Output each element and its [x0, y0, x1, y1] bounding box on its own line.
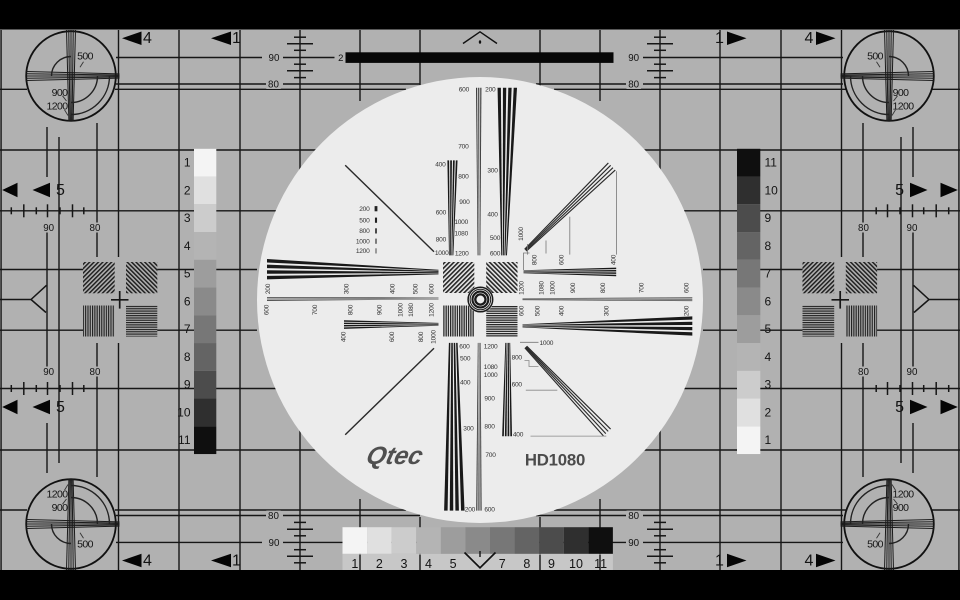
svg-text:3: 3: [400, 557, 407, 571]
svg-text:1200: 1200: [484, 344, 498, 351]
svg-text:400: 400: [487, 212, 498, 219]
svg-text:7: 7: [184, 322, 191, 336]
svg-text:9: 9: [765, 211, 772, 225]
svg-text:400: 400: [611, 254, 618, 265]
svg-text:11: 11: [594, 557, 607, 571]
svg-text:800: 800: [532, 254, 539, 265]
svg-text:2: 2: [376, 557, 383, 571]
svg-text:4: 4: [805, 552, 814, 569]
svg-text:800: 800: [512, 355, 523, 362]
svg-text:700: 700: [312, 304, 319, 315]
svg-text:1200: 1200: [519, 281, 526, 295]
svg-text:500: 500: [413, 283, 420, 294]
svg-text:4: 4: [143, 30, 152, 47]
svg-text:80: 80: [268, 79, 279, 90]
svg-text:1: 1: [184, 156, 191, 170]
svg-text:80: 80: [268, 511, 279, 522]
svg-text:8: 8: [523, 557, 530, 571]
svg-text:5: 5: [895, 182, 904, 199]
svg-text:80: 80: [858, 367, 869, 378]
svg-text:800: 800: [359, 228, 370, 235]
svg-text:3: 3: [765, 378, 772, 392]
svg-text:800: 800: [418, 331, 425, 342]
svg-text:80: 80: [90, 367, 101, 378]
svg-text:600: 600: [389, 331, 396, 342]
svg-text:600: 600: [459, 344, 470, 351]
svg-text:7: 7: [765, 267, 772, 281]
svg-text:1200: 1200: [356, 248, 370, 255]
svg-text:600: 600: [512, 382, 523, 389]
svg-text:600: 600: [459, 87, 470, 94]
svg-text:1080: 1080: [454, 230, 468, 237]
svg-text:700: 700: [458, 144, 469, 151]
svg-text:500: 500: [535, 305, 542, 316]
svg-text:500: 500: [867, 50, 883, 62]
svg-text:11: 11: [765, 156, 778, 170]
svg-text:400: 400: [435, 162, 446, 169]
svg-text:1000: 1000: [550, 281, 557, 295]
svg-text:90: 90: [628, 538, 639, 549]
svg-text:5: 5: [56, 399, 65, 416]
svg-text:10: 10: [765, 183, 779, 197]
svg-text:900: 900: [484, 396, 495, 403]
svg-text:800: 800: [600, 282, 607, 293]
svg-text:1000: 1000: [484, 372, 498, 379]
svg-text:600: 600: [684, 282, 691, 293]
svg-text:4: 4: [765, 350, 772, 364]
svg-text:1000: 1000: [356, 239, 370, 246]
svg-text:500: 500: [77, 50, 93, 62]
svg-text:300: 300: [604, 305, 611, 316]
svg-text:600: 600: [559, 254, 566, 265]
svg-text:800: 800: [484, 424, 495, 431]
svg-text:200: 200: [485, 87, 496, 94]
svg-text:5: 5: [450, 557, 457, 571]
svg-text:500: 500: [460, 356, 471, 363]
svg-text:5: 5: [895, 399, 904, 416]
svg-text:400: 400: [341, 331, 348, 342]
svg-text:1000: 1000: [398, 303, 405, 317]
svg-text:500: 500: [867, 538, 883, 550]
svg-text:200: 200: [359, 206, 370, 213]
svg-text:1: 1: [351, 557, 358, 571]
svg-text:90: 90: [907, 367, 918, 378]
svg-text:600: 600: [429, 283, 436, 294]
svg-text:8: 8: [184, 350, 191, 364]
svg-text:90: 90: [43, 367, 54, 378]
svg-text:900: 900: [52, 87, 68, 99]
svg-text:90: 90: [43, 223, 54, 234]
svg-text:90: 90: [907, 223, 918, 234]
svg-text:90: 90: [269, 53, 280, 64]
svg-text:7: 7: [499, 557, 506, 571]
svg-text:80: 80: [628, 79, 639, 90]
svg-text:2: 2: [765, 405, 772, 419]
svg-text:9: 9: [184, 378, 191, 392]
svg-text:500: 500: [359, 218, 370, 225]
svg-text:1080: 1080: [484, 364, 498, 371]
svg-text:1080: 1080: [408, 303, 415, 317]
svg-text:2: 2: [338, 53, 343, 64]
svg-text:4: 4: [805, 30, 814, 47]
svg-text:HD1080: HD1080: [525, 451, 585, 470]
svg-text:5: 5: [765, 322, 772, 336]
svg-text:80: 80: [628, 511, 639, 522]
svg-text:400: 400: [513, 432, 524, 439]
svg-text:1000: 1000: [435, 250, 449, 257]
svg-text:800: 800: [436, 237, 447, 244]
svg-text:400: 400: [460, 380, 471, 387]
svg-text:600: 600: [264, 304, 271, 315]
svg-text:900: 900: [893, 502, 909, 514]
svg-text:200: 200: [465, 507, 476, 514]
svg-text:90: 90: [628, 53, 639, 64]
svg-text:1: 1: [765, 433, 772, 447]
svg-text:8: 8: [765, 239, 772, 253]
svg-text:200: 200: [684, 305, 691, 316]
svg-text:1: 1: [232, 552, 241, 569]
svg-text:600: 600: [484, 507, 495, 514]
svg-text:800: 800: [348, 304, 355, 315]
svg-text:900: 900: [459, 199, 470, 206]
svg-text:1200: 1200: [429, 303, 436, 317]
svg-text:11: 11: [178, 433, 191, 447]
svg-text:90: 90: [269, 538, 280, 549]
svg-text:6: 6: [184, 294, 191, 308]
svg-text:10: 10: [177, 405, 191, 419]
svg-text:600: 600: [436, 210, 447, 217]
svg-text:4: 4: [184, 239, 191, 253]
svg-text:9: 9: [548, 557, 555, 571]
svg-text:600: 600: [519, 305, 526, 316]
svg-text:700: 700: [485, 452, 496, 459]
svg-text:1000: 1000: [518, 227, 525, 241]
svg-text:1000: 1000: [454, 219, 468, 226]
svg-text:600: 600: [490, 251, 501, 258]
svg-text:200: 200: [265, 283, 272, 294]
svg-text:300: 300: [487, 168, 498, 175]
svg-text:1: 1: [715, 30, 724, 47]
svg-text:800: 800: [458, 174, 469, 181]
svg-text:4: 4: [143, 552, 152, 569]
svg-text:500: 500: [490, 235, 501, 242]
svg-text:5: 5: [56, 182, 65, 199]
svg-text:400: 400: [390, 283, 397, 294]
svg-text:4: 4: [425, 557, 432, 571]
svg-text:3: 3: [184, 211, 191, 225]
svg-text:700: 700: [639, 282, 646, 293]
svg-text:1200: 1200: [455, 251, 469, 258]
svg-text:500: 500: [77, 538, 93, 550]
svg-text:300: 300: [463, 426, 474, 433]
svg-text:80: 80: [858, 223, 869, 234]
svg-text:5: 5: [184, 267, 191, 281]
svg-text:1200: 1200: [893, 488, 915, 500]
svg-text:300: 300: [344, 283, 351, 294]
svg-text:900: 900: [570, 282, 577, 293]
svg-text:900: 900: [893, 87, 909, 99]
svg-text:1200: 1200: [893, 100, 915, 112]
svg-text:1080: 1080: [539, 281, 546, 295]
svg-text:Qtec: Qtec: [364, 442, 426, 470]
svg-text:10: 10: [569, 557, 583, 571]
svg-text:2: 2: [184, 183, 191, 197]
svg-text:900: 900: [52, 502, 68, 514]
svg-text:1000: 1000: [540, 340, 554, 347]
svg-text:1: 1: [715, 552, 724, 569]
svg-text:900: 900: [377, 304, 384, 315]
svg-text:1000: 1000: [431, 330, 438, 344]
svg-text:400: 400: [559, 305, 566, 316]
svg-text:80: 80: [90, 223, 101, 234]
svg-text:6: 6: [765, 294, 772, 308]
svg-text:1: 1: [232, 30, 241, 47]
